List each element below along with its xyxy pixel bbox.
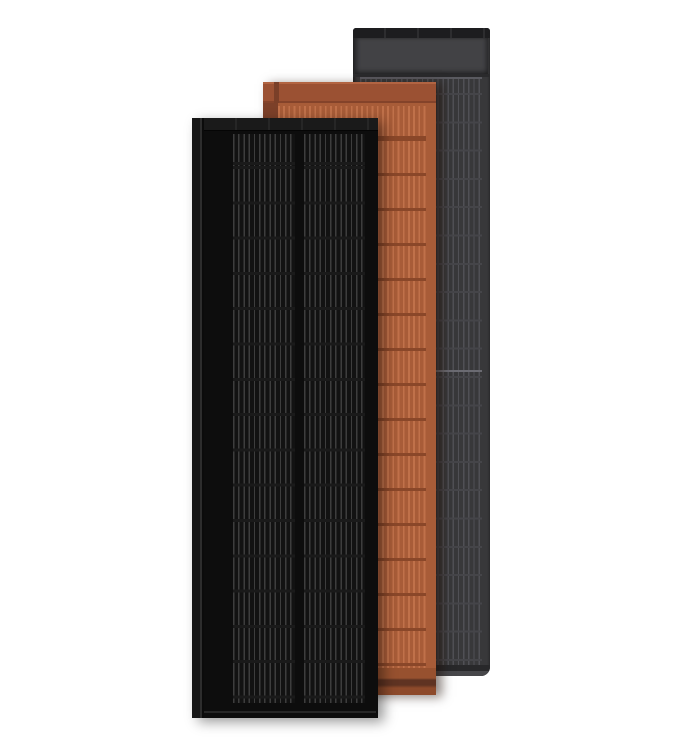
- gray-panel-top-bar: [353, 28, 490, 38]
- product-stage: [0, 0, 684, 748]
- black-panel-cell-grid: [233, 134, 365, 703]
- black-solar-panel: [192, 118, 378, 718]
- black-panel-grid-right-column: [304, 134, 366, 703]
- black-panel-grid-left-column: [233, 134, 295, 703]
- gray-panel-header-band: [355, 38, 488, 74]
- terracotta-panel-header-seam: [274, 82, 279, 103]
- terracotta-panel-header-band: [263, 82, 436, 103]
- black-panel-bottom-edge-line: [204, 711, 376, 713]
- black-panel-top-bar: [204, 118, 378, 131]
- black-panel-side-rail: [192, 118, 204, 718]
